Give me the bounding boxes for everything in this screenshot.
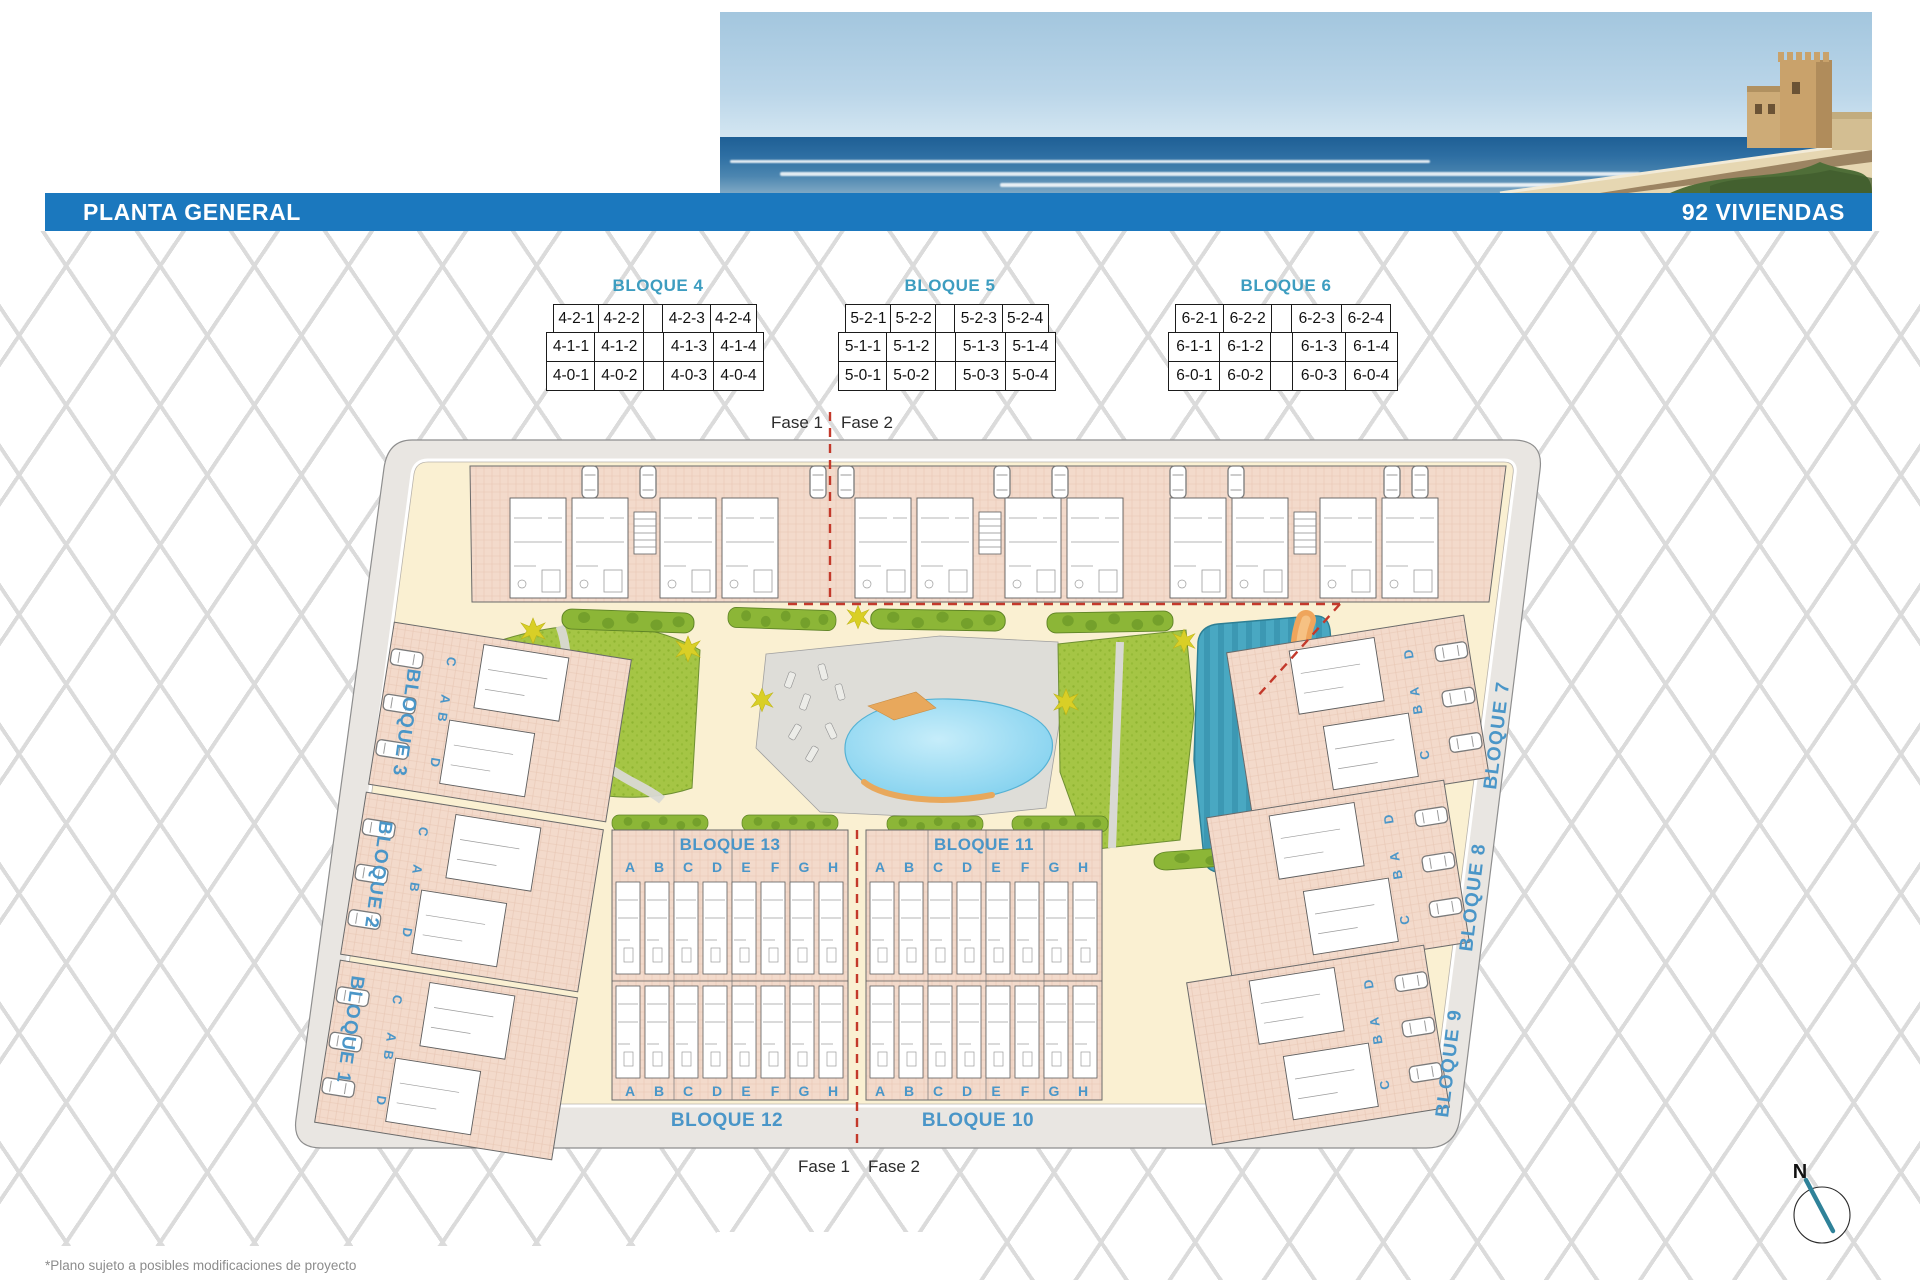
page: PLANTA GENERAL 92 VIVIENDAS BLOQUE 4 4-2… (0, 0, 1920, 1280)
unit-letter: B (654, 859, 664, 875)
unit-letter: D (712, 859, 722, 875)
compass-north: N (1793, 1161, 1850, 1243)
north-label: N (1793, 1161, 1807, 1183)
unit-letter: D (962, 859, 972, 875)
unit-letter: G (799, 1083, 810, 1099)
north-building-band (470, 466, 1506, 602)
unit-floorplan (899, 882, 923, 974)
unit-floorplan (790, 986, 814, 1078)
unit-letter: A (625, 859, 635, 875)
unit-letter: F (771, 859, 780, 875)
unit-letter: E (741, 1083, 750, 1099)
unit-floorplan (674, 986, 698, 1078)
unit-floorplan (928, 986, 952, 1078)
unit-floorplan (616, 882, 640, 974)
unit-floorplan (1073, 882, 1097, 974)
unit-floorplan (957, 986, 981, 1078)
unit-letter: B (904, 1083, 914, 1099)
unit-letter: H (828, 859, 838, 875)
unit-floorplan (1015, 882, 1039, 974)
unit-floorplan (870, 986, 894, 1078)
unit-floorplan (986, 882, 1010, 974)
unit-floorplan (899, 986, 923, 1078)
unit-letter: C (933, 859, 943, 875)
unit-floorplan (928, 882, 952, 974)
unit-floorplan (819, 986, 843, 1078)
unit-letter: D (712, 1083, 722, 1099)
unit-letter: D (962, 1083, 972, 1099)
unit-floorplan (645, 986, 669, 1078)
unit-letter: H (828, 1083, 838, 1099)
unit-letter: B (654, 1083, 664, 1099)
unit-floorplan (1015, 986, 1039, 1078)
bottom-white-shape (690, 1232, 960, 1280)
unit-floorplan (616, 986, 640, 1078)
unit-floorplan (1073, 986, 1097, 1078)
bloque-13-label: BLOQUE 13 (680, 835, 781, 854)
unit-letter: C (933, 1083, 943, 1099)
unit-letter: A (625, 1083, 635, 1099)
unit-letter: G (1049, 1083, 1060, 1099)
unit-floorplan (732, 882, 756, 974)
bloque-10-label: BLOQUE 10 (922, 1110, 1034, 1131)
unit-floorplan (870, 882, 894, 974)
bloque-11-label: BLOQUE 11 (934, 835, 1034, 854)
unit-letter: B (904, 859, 914, 875)
unit-letter: H (1078, 1083, 1088, 1099)
unit-letter: A (875, 859, 885, 875)
unit-letter: G (1049, 859, 1060, 875)
unit-floorplan (819, 882, 843, 974)
unit-floorplan (1044, 986, 1068, 1078)
unit-letter: H (1078, 859, 1088, 875)
unit-floorplan (761, 986, 785, 1078)
unit-floorplan (1044, 882, 1068, 974)
unit-letter: E (991, 859, 1000, 875)
site-plan: C A B D C A B D C A B D (0, 0, 1920, 1280)
unit-letter: F (1021, 859, 1030, 875)
unit-floorplan (645, 882, 669, 974)
unit-floorplan (957, 882, 981, 974)
footnote-text: *Plano sujeto a posibles modificaciones … (45, 1258, 356, 1273)
bloque-12-label: BLOQUE 12 (671, 1110, 783, 1131)
unit-letter: F (771, 1083, 780, 1099)
unit-letter: F (1021, 1083, 1030, 1099)
unit-letter: A (875, 1083, 885, 1099)
unit-letter: E (741, 859, 750, 875)
unit-floorplan (674, 882, 698, 974)
unit-floorplan (703, 882, 727, 974)
unit-floorplan (703, 986, 727, 1078)
unit-letter: E (991, 1083, 1000, 1099)
unit-letter: C (683, 859, 693, 875)
unit-floorplan (761, 882, 785, 974)
unit-floorplan (790, 882, 814, 974)
unit-letter: C (683, 1083, 693, 1099)
unit-floorplan (732, 986, 756, 1078)
unit-floorplan (986, 986, 1010, 1078)
unit-letter: G (799, 859, 810, 875)
